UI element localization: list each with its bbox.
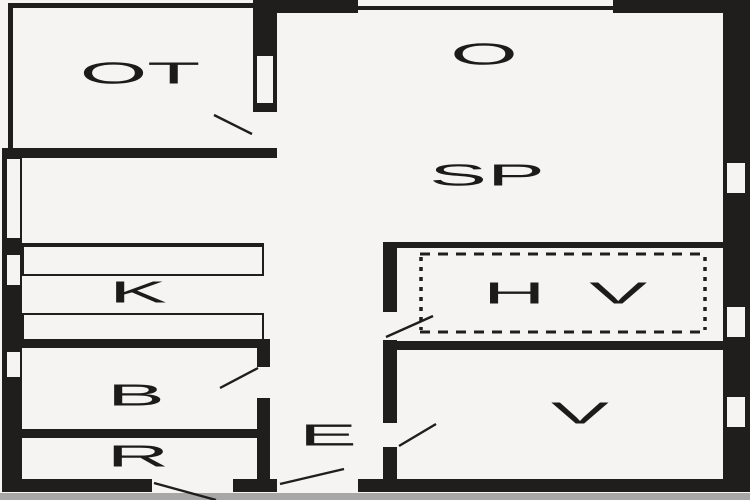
- room-label-o: O: [450, 39, 518, 70]
- wall-b-right: [257, 339, 270, 481]
- door-swing-v: [399, 424, 436, 446]
- wall-bottom-right-segment: [358, 479, 750, 492]
- floorplan-canvas: OT O SP K B R E H V V: [0, 0, 750, 500]
- wall-bottom-left-segment: [2, 479, 152, 492]
- window-left-middle: [7, 255, 20, 285]
- window-left-upper: [7, 159, 20, 238]
- kitchen-counter-upper: [22, 243, 264, 276]
- room-label-r: R: [107, 441, 170, 472]
- window-top-band: [358, 0, 613, 6]
- window-ot-wall: [257, 56, 273, 103]
- wall-bottom-middle-segment: [233, 479, 277, 492]
- wall-b-r-divider: [22, 429, 262, 438]
- door-swing-ot: [214, 115, 252, 134]
- room-label-hv: H V: [483, 278, 647, 309]
- room-label-k: K: [109, 277, 167, 308]
- room-label-b: B: [107, 380, 165, 411]
- wall-b-top: [22, 339, 270, 348]
- wall-ot-top: [8, 3, 255, 8]
- room-label-v: V: [551, 398, 609, 429]
- room-label-ot: OT: [80, 58, 201, 89]
- door-opening-b: [257, 367, 270, 398]
- wall-ot-left: [8, 3, 13, 152]
- window-right-upper: [727, 163, 745, 193]
- door-swing-b: [220, 368, 258, 388]
- window-left-lower: [7, 352, 20, 377]
- window-right-middle: [727, 307, 745, 337]
- door-opening-v: [383, 423, 397, 447]
- wall-top-left-segment: [253, 0, 358, 13]
- wall-ot-bottom: [2, 148, 277, 158]
- door-opening-ot: [253, 112, 277, 148]
- wall-hv-top: [383, 242, 727, 248]
- door-opening-hv: [383, 312, 397, 340]
- window-right-lower: [727, 397, 745, 427]
- image-bottom-edge: [0, 493, 750, 500]
- room-label-sp: SP: [429, 160, 545, 191]
- wall-hv-v-divider: [383, 341, 727, 350]
- door-swing-entrance-e: [280, 469, 344, 484]
- room-label-e: E: [299, 420, 357, 451]
